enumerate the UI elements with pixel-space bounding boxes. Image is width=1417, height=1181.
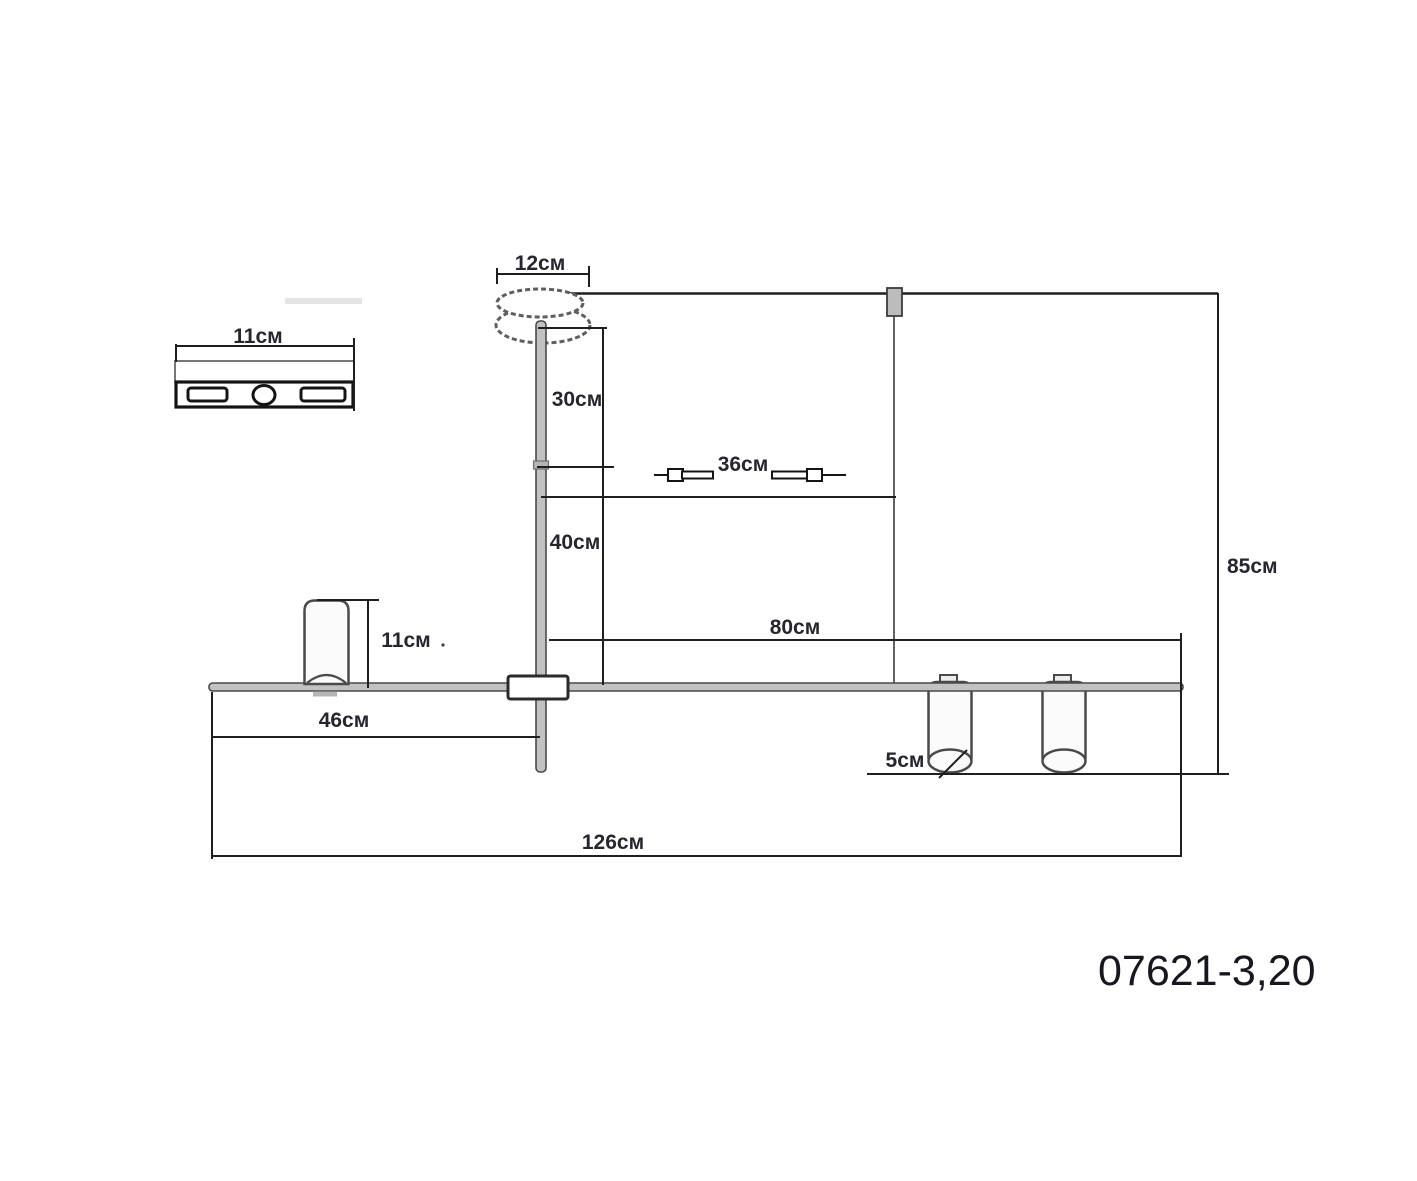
support-rod (534, 321, 549, 772)
bracket-center-hole (253, 386, 275, 405)
spot-bottom-rim (1043, 750, 1086, 773)
bracket-top-plate (175, 361, 354, 382)
lamp-dimension-diagram: 11см 12см (0, 0, 1417, 1181)
canopy-width-label: 12см (515, 252, 566, 275)
spot-body (305, 601, 349, 685)
total-length-label: 126см (582, 831, 644, 854)
rod-height-dimensions: 30см 40см (537, 328, 614, 685)
arrow-body (682, 472, 713, 479)
drawing-canvas: 11см 12см (0, 0, 1417, 1181)
spot-body (929, 682, 972, 758)
arrow-body (772, 472, 808, 479)
rod-upper-label: 30см (552, 388, 603, 411)
mounting-bracket: 11см (175, 325, 354, 411)
wire-ceiling-fitting (887, 288, 902, 316)
right-span-dimension: 80см (549, 616, 1181, 640)
stray-dot (441, 643, 444, 646)
spot-cylinder-left (305, 601, 349, 697)
slide-arrow-left (654, 469, 713, 481)
left-offset-dimension: 46см (212, 709, 540, 737)
rod-lower-label: 40см (550, 531, 601, 554)
slide-range-dimension: 36см (541, 453, 896, 497)
shade-height-label: 11см (381, 629, 430, 652)
right-span-label: 80см (770, 616, 821, 639)
model-number: 07621-3,20 (1098, 947, 1316, 995)
horizontal-bar (209, 683, 1183, 691)
canopy-top-ellipse (497, 289, 583, 317)
spot-base-strip (313, 692, 337, 697)
slide-range-label: 36см (718, 453, 769, 476)
total-length-dimension: 126см (212, 633, 1181, 859)
rod-body (536, 321, 546, 772)
bracket-width-label: 11см (233, 325, 282, 348)
slide-arrow-right (772, 469, 846, 481)
suspension-wire-assembly (887, 288, 902, 684)
connector-box (508, 676, 568, 699)
shade-diameter-label: 5см (886, 749, 925, 772)
left-offset-label: 46см (319, 709, 370, 732)
total-drop-label: 85см (1227, 555, 1278, 578)
spot-body (1043, 682, 1086, 758)
bracket-slot-left (188, 388, 227, 401)
arrow-head (807, 469, 822, 481)
bracket-slot-right (301, 388, 345, 401)
arrow-head (668, 469, 683, 481)
